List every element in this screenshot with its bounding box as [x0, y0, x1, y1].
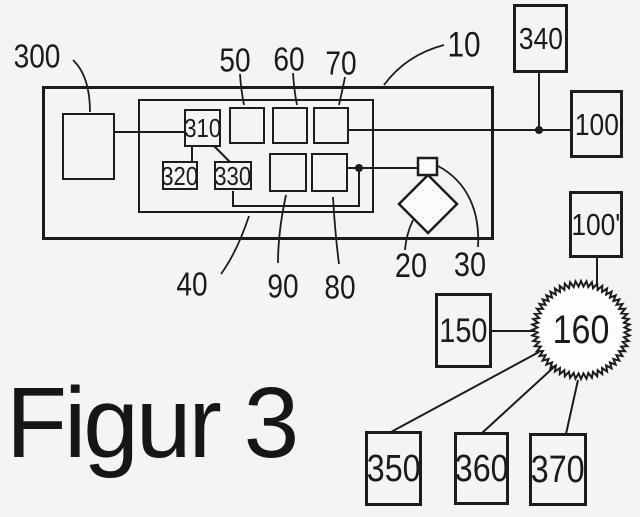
box-350-label: 350: [367, 450, 421, 488]
box-90: [269, 153, 307, 192]
ref-label-30: 30: [454, 248, 486, 282]
box-320-label: 320: [162, 163, 199, 189]
ref-label-80: 80: [324, 271, 355, 304]
box-150-label: 150: [439, 314, 487, 348]
box-100-prime: 100': [569, 191, 623, 258]
box-340-label: 340: [519, 23, 563, 54]
connector-160-370: [566, 380, 578, 434]
box-370-label: 370: [531, 451, 585, 489]
ref-label-40: 40: [176, 268, 207, 301]
leader-10: [384, 45, 444, 85]
box-370: 370: [529, 433, 587, 506]
box-330: 330: [214, 161, 252, 190]
ref-label-160: 160: [553, 310, 610, 350]
box-300: [62, 113, 115, 180]
box-80: [311, 153, 348, 192]
box-360-label: 360: [455, 450, 509, 488]
box-50: [229, 107, 265, 144]
box-100-label: 100: [575, 109, 619, 140]
box-320: 320: [162, 161, 198, 190]
box-70: [313, 107, 349, 144]
ref-label-70: 70: [325, 47, 356, 80]
box-360: 360: [454, 432, 509, 505]
box-100: 100: [570, 90, 623, 158]
patent-figure-3: 310 320 330 340 100 100' 150 350 360 370…: [0, 0, 640, 517]
box-60: [272, 107, 308, 144]
ref-label-300: 300: [14, 40, 61, 73]
junction-dot-right: [535, 126, 543, 134]
ref-label-50: 50: [219, 44, 250, 77]
box-330-label: 330: [215, 163, 252, 189]
figure-caption: Figur 3: [6, 373, 296, 473]
ref-label-60: 60: [273, 43, 304, 76]
box-310-label: 310: [184, 115, 221, 141]
box-340: 340: [513, 4, 568, 73]
box-310: 310: [184, 109, 221, 147]
box-150: 150: [435, 293, 492, 368]
ref-label-90: 90: [267, 270, 298, 303]
box-350: 350: [365, 431, 422, 506]
ref-label-20: 20: [395, 249, 427, 283]
ref-label-10: 10: [447, 28, 480, 63]
box-100-prime-label: 100': [572, 209, 621, 240]
